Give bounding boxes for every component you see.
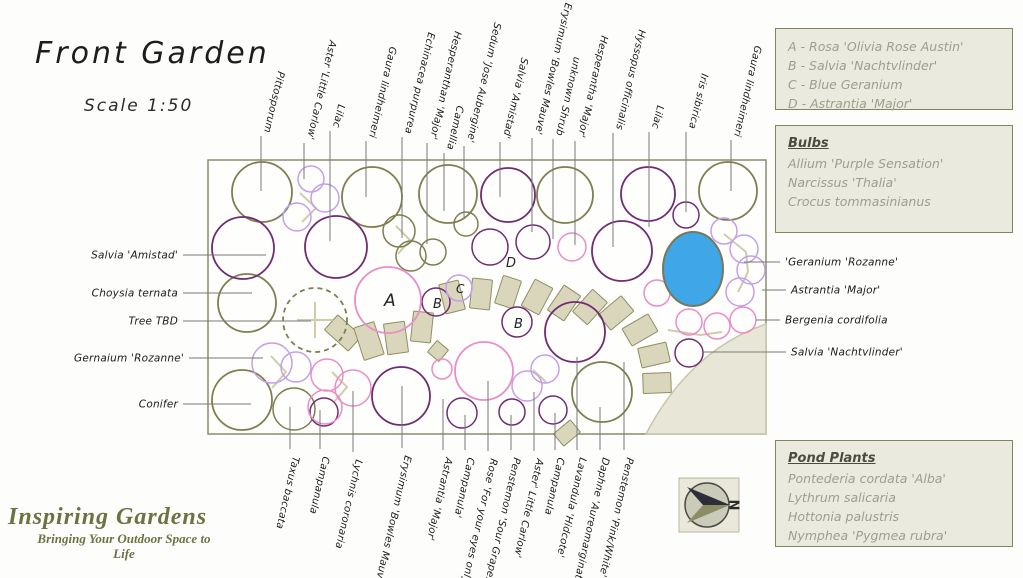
brand-tagline-line2: Life (8, 546, 240, 561)
plant-label-right: Astrantia 'Major' (790, 285, 880, 297)
stepping-stone (643, 373, 672, 394)
plant-label-top: Echinacea purpurea (402, 31, 436, 135)
plant-marker-letter: B (514, 317, 523, 332)
plant-label-bottom: Taxus baccata (273, 455, 300, 530)
plant-label-left: Conifer (139, 399, 179, 411)
pond (663, 232, 723, 306)
stepping-stone (410, 311, 433, 343)
plant-label-top: Lilac (330, 103, 346, 129)
compass-north-label: N (726, 500, 741, 511)
plant-label-top: Salvia 'Amistad' (500, 57, 529, 140)
plant-label-left: Choysia ternata (92, 288, 178, 300)
plant-label-right: 'Geranium 'Rozanne' (785, 257, 898, 269)
plant-label-top: Hyssopus officinalis (613, 28, 647, 130)
plant-label-top: Pittosporum (261, 70, 286, 134)
plant-label-right: Salvia 'Nachtvlinder' (791, 347, 903, 359)
plant-label-top: Camellia (444, 104, 465, 150)
plant-label-top: Iris sibirica (686, 72, 709, 129)
plant-label-right: Bergenia cordifolia (785, 315, 888, 327)
plant-label-top: Lilac (649, 104, 665, 130)
plant-label-bottom: Campanula (307, 455, 331, 515)
plant-marker-letter: A (383, 291, 396, 311)
plant-label-left: Salvia 'Amistad' (91, 250, 178, 262)
brand-logo: Inspiring Gardens Bringing Your Outdoor … (8, 504, 240, 561)
stepping-stone (469, 278, 492, 310)
garden-plan-page: Front Garden Scale 1:50 A - Rosa 'Olivia… (0, 0, 1023, 578)
plant-label-top: Sedum 'Jose Aubergine' (464, 21, 502, 143)
plant-label-bottom: Campanula (542, 456, 566, 516)
plant-label-bottom: Campanula' (451, 456, 476, 519)
plant-label-bottom: Lychnis coronaria (333, 458, 364, 549)
plant-label-top: Gaura lindheimeri (731, 44, 763, 137)
plant-label-top: Hesperantha 'Major' (575, 34, 609, 138)
garden-plan-svg: PittosporumAster 'Little Carlow'LilacGau… (0, 0, 1023, 578)
plant-label-bottom: Astrantia 'Major' (424, 455, 454, 541)
plant-marker-letter: D (506, 256, 516, 271)
plant-marker-letter: C (456, 282, 465, 296)
plant-label-bottom: Erysimum 'Bowles Mauve' (372, 454, 413, 578)
brand-name: Inspiring Gardens (8, 504, 240, 531)
plant-label-left: Gernaium 'Rozanne' (74, 353, 184, 365)
brand-tagline-line1: Bringing Your Outdoor Space to (8, 531, 240, 546)
plant-marker-letter: B (433, 297, 442, 312)
compass: N (678, 477, 740, 533)
plant-label-top: Gaura lindheimeri (366, 45, 398, 138)
stepping-stone (383, 321, 408, 355)
plant-label-left: Tree TBD (129, 316, 178, 328)
